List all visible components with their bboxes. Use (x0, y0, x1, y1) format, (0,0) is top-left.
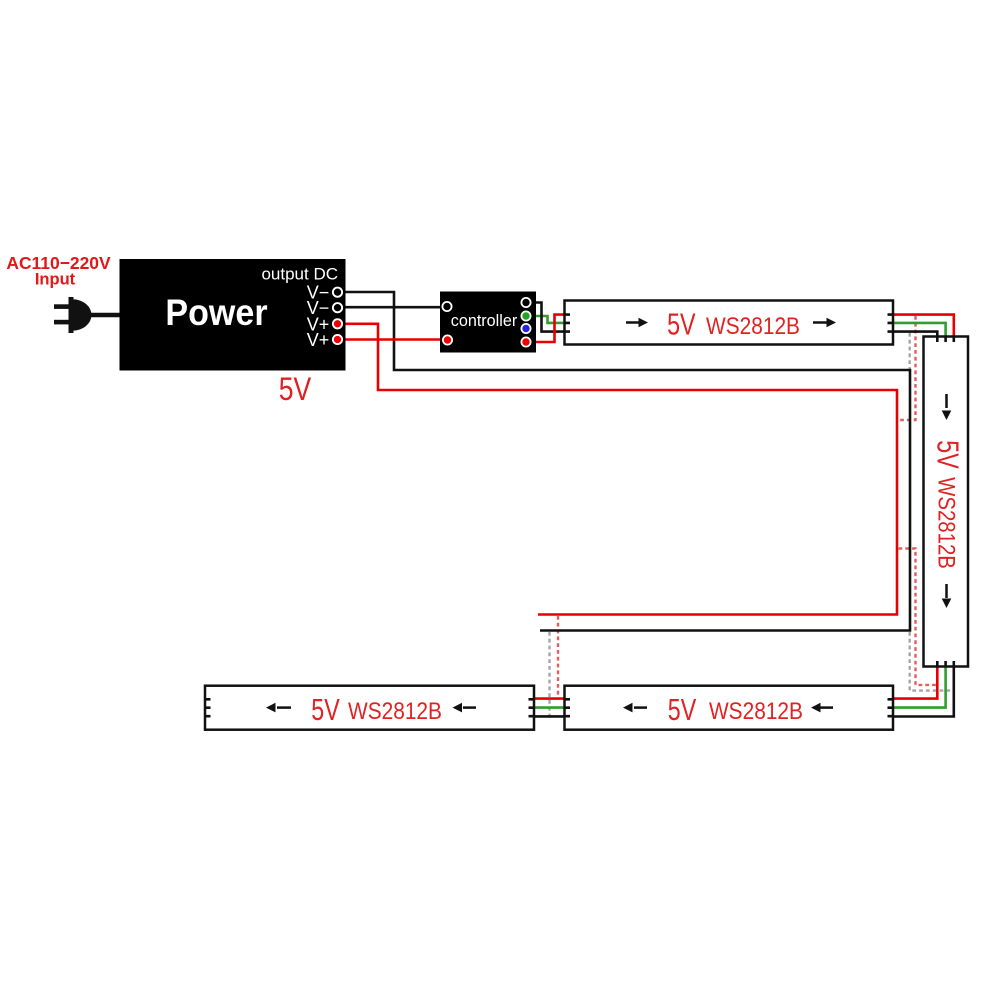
svg-text:output DC: output DC (261, 265, 338, 284)
svg-text:Input: Input (35, 271, 76, 289)
svg-text:WS2812B: WS2812B (709, 698, 803, 725)
svg-text:Power: Power (165, 292, 267, 334)
svg-text:5V: 5V (311, 692, 340, 727)
svg-text:WS2812B: WS2812B (706, 312, 800, 339)
svg-text:V+: V+ (307, 330, 330, 350)
svg-text:5V: 5V (931, 440, 966, 469)
svg-text:controller: controller (451, 310, 518, 329)
svg-text:WS2812B: WS2812B (348, 698, 442, 725)
svg-text:WS2812B: WS2812B (933, 477, 960, 569)
svg-text:5V: 5V (279, 372, 312, 408)
svg-text:5V: 5V (667, 306, 696, 341)
svg-text:5V: 5V (668, 692, 697, 727)
